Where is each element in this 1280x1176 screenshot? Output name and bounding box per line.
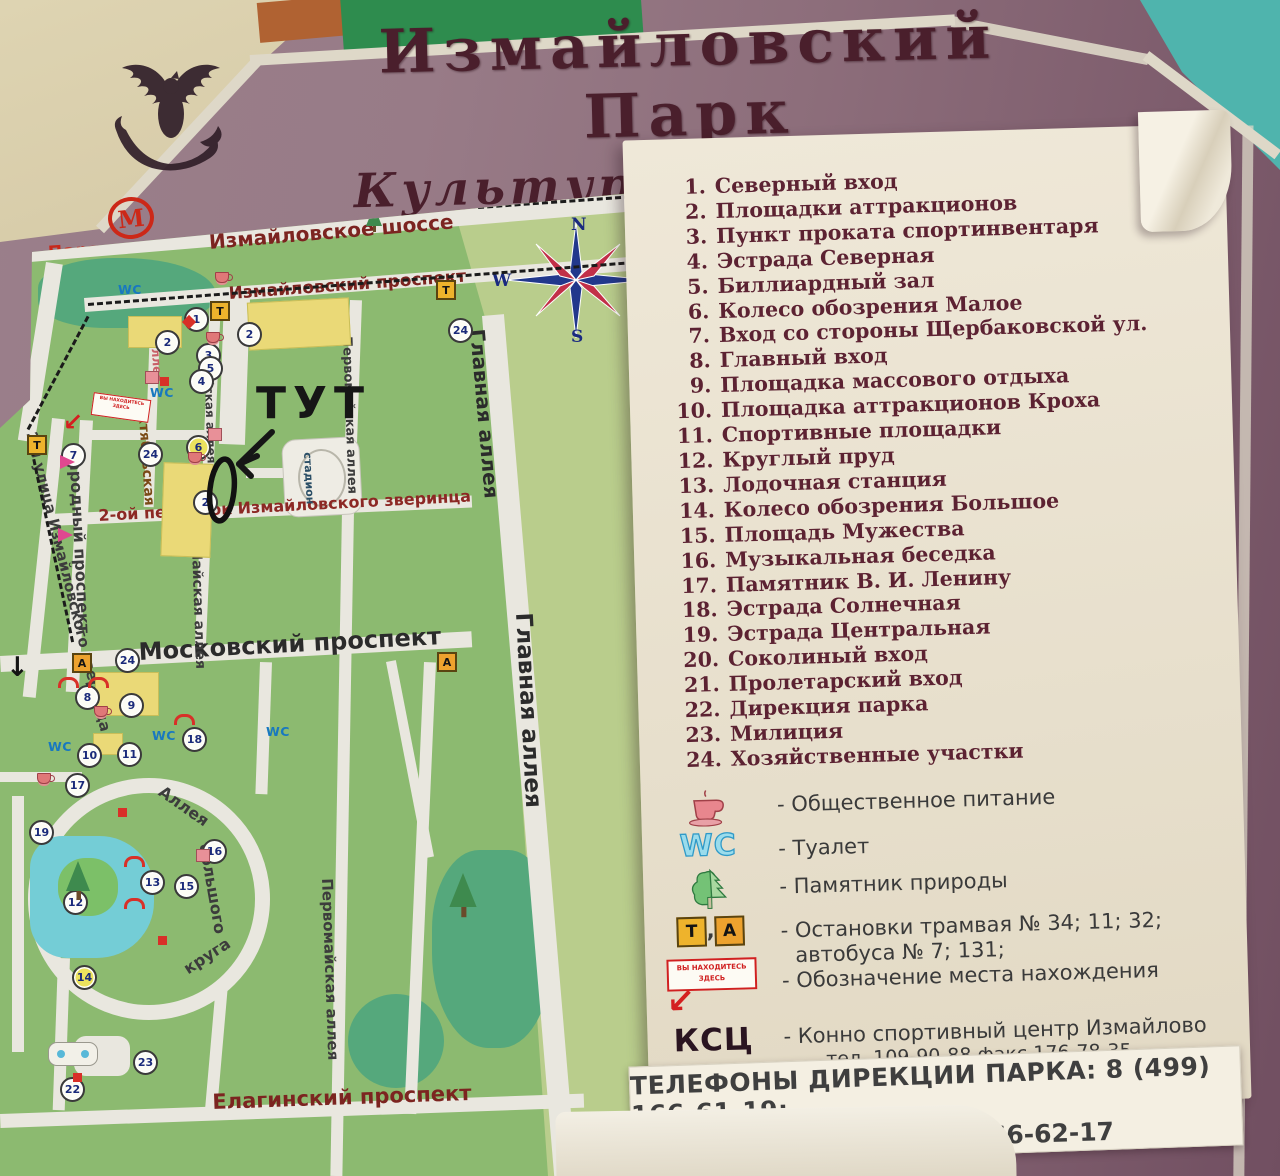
- map-tree-icon: [449, 873, 476, 907]
- compass-n: N: [571, 215, 587, 235]
- map-wc-label: WC: [118, 282, 142, 297]
- map-cafe-icon: [37, 773, 51, 784]
- here-line2: ЗДЕСЬ: [699, 974, 726, 983]
- legend-sheet: 1.Северный вход2.Площадки аттракционов3.…: [623, 124, 1252, 1115]
- legend-item-number: 13.: [658, 473, 715, 499]
- legend-item-number: 7.: [654, 324, 711, 350]
- map-tram-stop-icon: Т: [436, 280, 456, 300]
- map-marker-number: 19: [29, 820, 54, 845]
- legend-item-number: 20.: [663, 647, 720, 673]
- map-red-arc-icon: [124, 856, 145, 867]
- map-red-marker: [158, 936, 167, 945]
- metro-letter: М: [116, 202, 145, 234]
- map-attraction-zone: [247, 297, 351, 350]
- map-marker-number: 13: [140, 870, 165, 895]
- map-red-marker: [73, 1073, 82, 1082]
- legend-list: 1.Северный вход2.Площадки аттракционов3.…: [650, 161, 1206, 774]
- legend-item-number: 22.: [664, 697, 721, 723]
- map-red-arc-icon: [174, 714, 195, 725]
- legend-item-number: 18.: [661, 598, 718, 624]
- map-red-marker: [118, 808, 127, 817]
- map-building-icon: [145, 371, 159, 384]
- legend-item-number: 1.: [650, 174, 707, 200]
- map-tree-icon: [66, 861, 90, 891]
- park-bird-emblem-icon: [82, 46, 257, 180]
- ksc-symbol: КСЦ: [665, 1021, 762, 1060]
- park-map-sign-photo: Измайловский Парк Культуры и Отдыха М Па…: [0, 0, 1280, 1176]
- hand-drawn-annotation: ТУТ: [180, 370, 390, 554]
- map-directorate-building: [48, 1042, 98, 1066]
- map-wc-label: WC: [152, 728, 176, 743]
- legend-wc-label: - Туалет: [778, 834, 870, 861]
- map-marker-number: 17: [65, 773, 90, 798]
- map-pink-arrow-icon: [60, 455, 75, 469]
- legend-item-number: 6.: [653, 299, 710, 325]
- map-marker-number: 9: [119, 693, 144, 718]
- legend-item-number: 19.: [662, 622, 719, 648]
- map-bus-stop-icon: А: [437, 652, 457, 672]
- paper-curl-bottom: [555, 1104, 1016, 1176]
- circled-location: [207, 458, 237, 522]
- tree-icon: [661, 863, 758, 917]
- map-cafe-icon: [215, 272, 229, 283]
- map-pink-arrow-icon: [58, 528, 73, 542]
- legend-item-number: 24.: [665, 747, 722, 773]
- wc-icon: WC: [660, 827, 757, 865]
- cup-icon: [659, 787, 756, 833]
- legend-item-number: 21.: [663, 672, 720, 698]
- legend-item-number: 16.: [660, 548, 717, 574]
- you-are-here-icon: ВЫ НАХОДИТЕСЬ ЗДЕСЬ ↙: [663, 957, 760, 992]
- map-tram-stop-icon: Т: [27, 435, 47, 455]
- map-marker-number: 2: [155, 330, 180, 355]
- legend-item-number: 3.: [651, 224, 708, 250]
- legend-item-number: 15.: [659, 523, 716, 549]
- map-red-marker: [160, 377, 169, 386]
- map-marker-number: 10: [77, 743, 102, 768]
- map-marker-number: 15: [174, 874, 199, 899]
- map-cafe-icon: [94, 706, 108, 717]
- map-red-arc-icon: [58, 677, 79, 688]
- legend-item-number: 23.: [665, 722, 722, 748]
- map-road: [12, 796, 24, 1052]
- map-marker-number: 2: [237, 322, 262, 347]
- map-bus-stop-icon: А: [72, 653, 92, 673]
- here-line1: ВЫ НАХОДИТЕСЬ: [677, 962, 747, 972]
- map-wc-label: WC: [150, 385, 174, 400]
- legend-nature-label: - Памятник природы: [779, 868, 1008, 898]
- map-wc-label: WC: [266, 724, 290, 739]
- legend-item-label: Милиция: [730, 719, 844, 747]
- legend-item-number: 5.: [652, 274, 709, 300]
- map-marker-number: 24: [138, 442, 163, 467]
- map-tram-stop-icon: Т: [210, 301, 230, 321]
- map-red-arc-icon: [124, 898, 145, 909]
- map-building-icon: [196, 849, 210, 862]
- map-cafe-icon: [206, 332, 220, 343]
- here-arrow-icon: ↙: [666, 981, 696, 1022]
- legend-item-number: 11.: [656, 423, 713, 449]
- legend-item-number: 12.: [657, 448, 714, 474]
- bus-stop-icon: А: [714, 915, 745, 946]
- legend-item-number: 8.: [654, 349, 711, 375]
- legend-item-number: 17.: [661, 573, 718, 599]
- compass-s: S: [571, 327, 583, 346]
- tut-label: ТУТ: [256, 378, 371, 429]
- legend-item-number: 14.: [659, 498, 716, 524]
- map-black-arrow-icon: ↓: [6, 652, 29, 683]
- legend-item-number: 2.: [650, 199, 707, 225]
- map-marker-number: 23: [133, 1050, 158, 1075]
- map-marker-number: 18: [182, 727, 207, 752]
- map-red-arc-icon: [88, 677, 109, 688]
- legend-item-number: 9.: [655, 373, 712, 399]
- map-wc-label: WC: [48, 739, 72, 754]
- map-marker-number: 14: [72, 965, 97, 990]
- map-here-arrow-icon: ↙: [63, 408, 83, 436]
- map-marker-number: 11: [117, 742, 142, 767]
- legend-food-label: - Общественное питание: [777, 785, 1056, 817]
- tram-stop-icon: Т: [676, 917, 707, 948]
- map-marker-number: 24: [115, 648, 140, 673]
- map-forest-area: [348, 994, 444, 1088]
- map-marker-number: 24: [448, 318, 473, 343]
- tram-bus-stop-icons: Т,А: [662, 915, 759, 948]
- legend-item-number: 4.: [652, 249, 709, 275]
- legend-item-number: 10.: [656, 398, 713, 424]
